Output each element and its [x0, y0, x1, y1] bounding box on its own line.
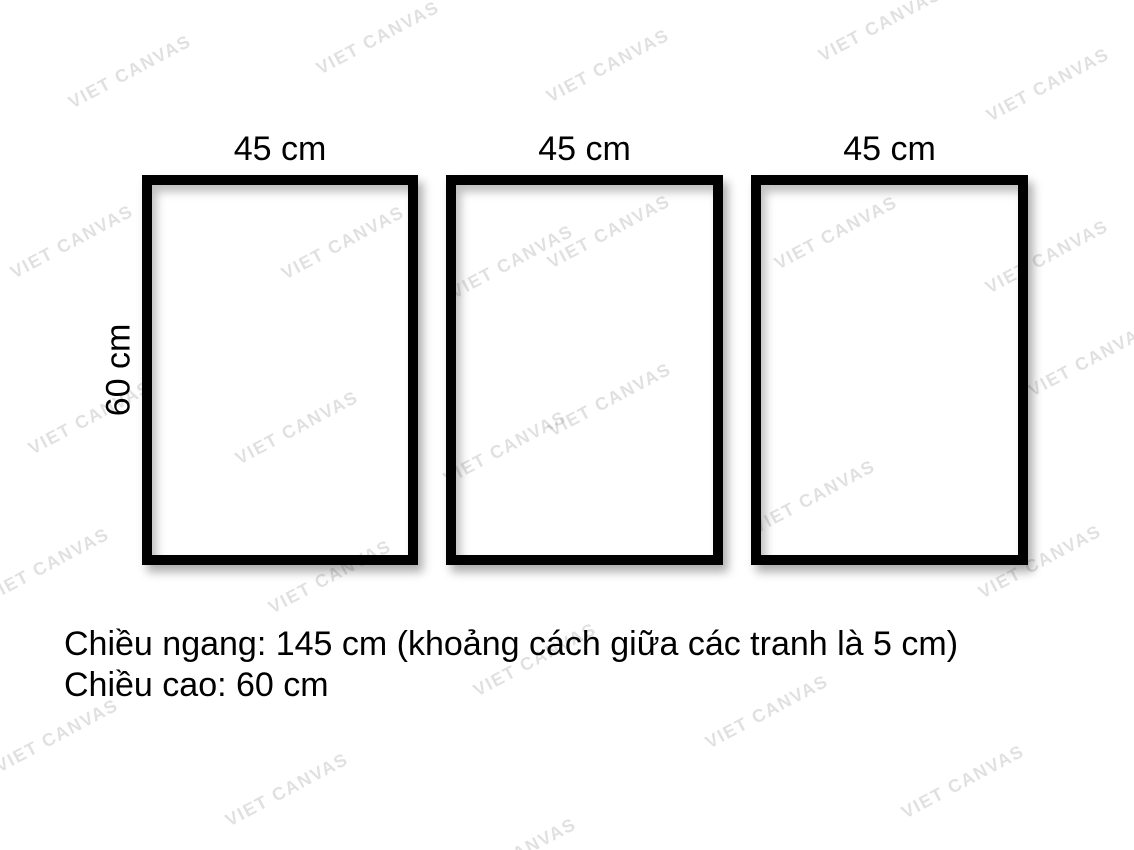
watermark-text: VIET CANVAS: [313, 0, 443, 79]
frame-2-width-label: 45 cm: [446, 129, 723, 169]
watermark-text: VIET CANVAS: [65, 31, 195, 113]
watermark-text: VIET CANVAS: [0, 695, 122, 777]
frame-1: [142, 175, 418, 565]
frame-3-width-label: 45 cm: [751, 129, 1028, 169]
watermark-text: VIET CANVAS: [222, 749, 352, 831]
caption-line-horizontal: Chiều ngang: 145 cm (khoảng cách giữa cá…: [64, 624, 958, 665]
frame-2: [446, 175, 723, 565]
product-dimension-diagram: VIET CANVASVIET CANVASVIET CANVASVIET CA…: [0, 0, 1134, 850]
frame-unit-3: 45 cm: [751, 175, 1028, 565]
frames-row: 45 cm 45 cm 45 cm: [142, 175, 1028, 565]
frame-3: [751, 175, 1028, 565]
watermark-text: VIET CANVAS: [815, 0, 945, 66]
caption-line-vertical: Chiều cao: 60 cm: [64, 665, 958, 706]
watermark-text: VIET CANVAS: [1025, 319, 1134, 401]
watermark-text: VIET CANVAS: [0, 524, 113, 606]
frame-unit-1: 45 cm: [142, 175, 418, 565]
watermark-text: VIET CANVAS: [898, 741, 1028, 823]
frame-1-width-label: 45 cm: [142, 129, 418, 169]
watermark-text: VIET CANVAS: [7, 201, 137, 283]
frame-height-label: 60 cm: [100, 324, 139, 417]
watermark-text: VIET CANVAS: [543, 25, 673, 107]
watermark-text: VIET CANVAS: [450, 814, 580, 850]
caption: Chiều ngang: 145 cm (khoảng cách giữa cá…: [64, 624, 958, 706]
frame-unit-2: 45 cm: [446, 175, 723, 565]
watermark-text: VIET CANVAS: [983, 44, 1113, 126]
